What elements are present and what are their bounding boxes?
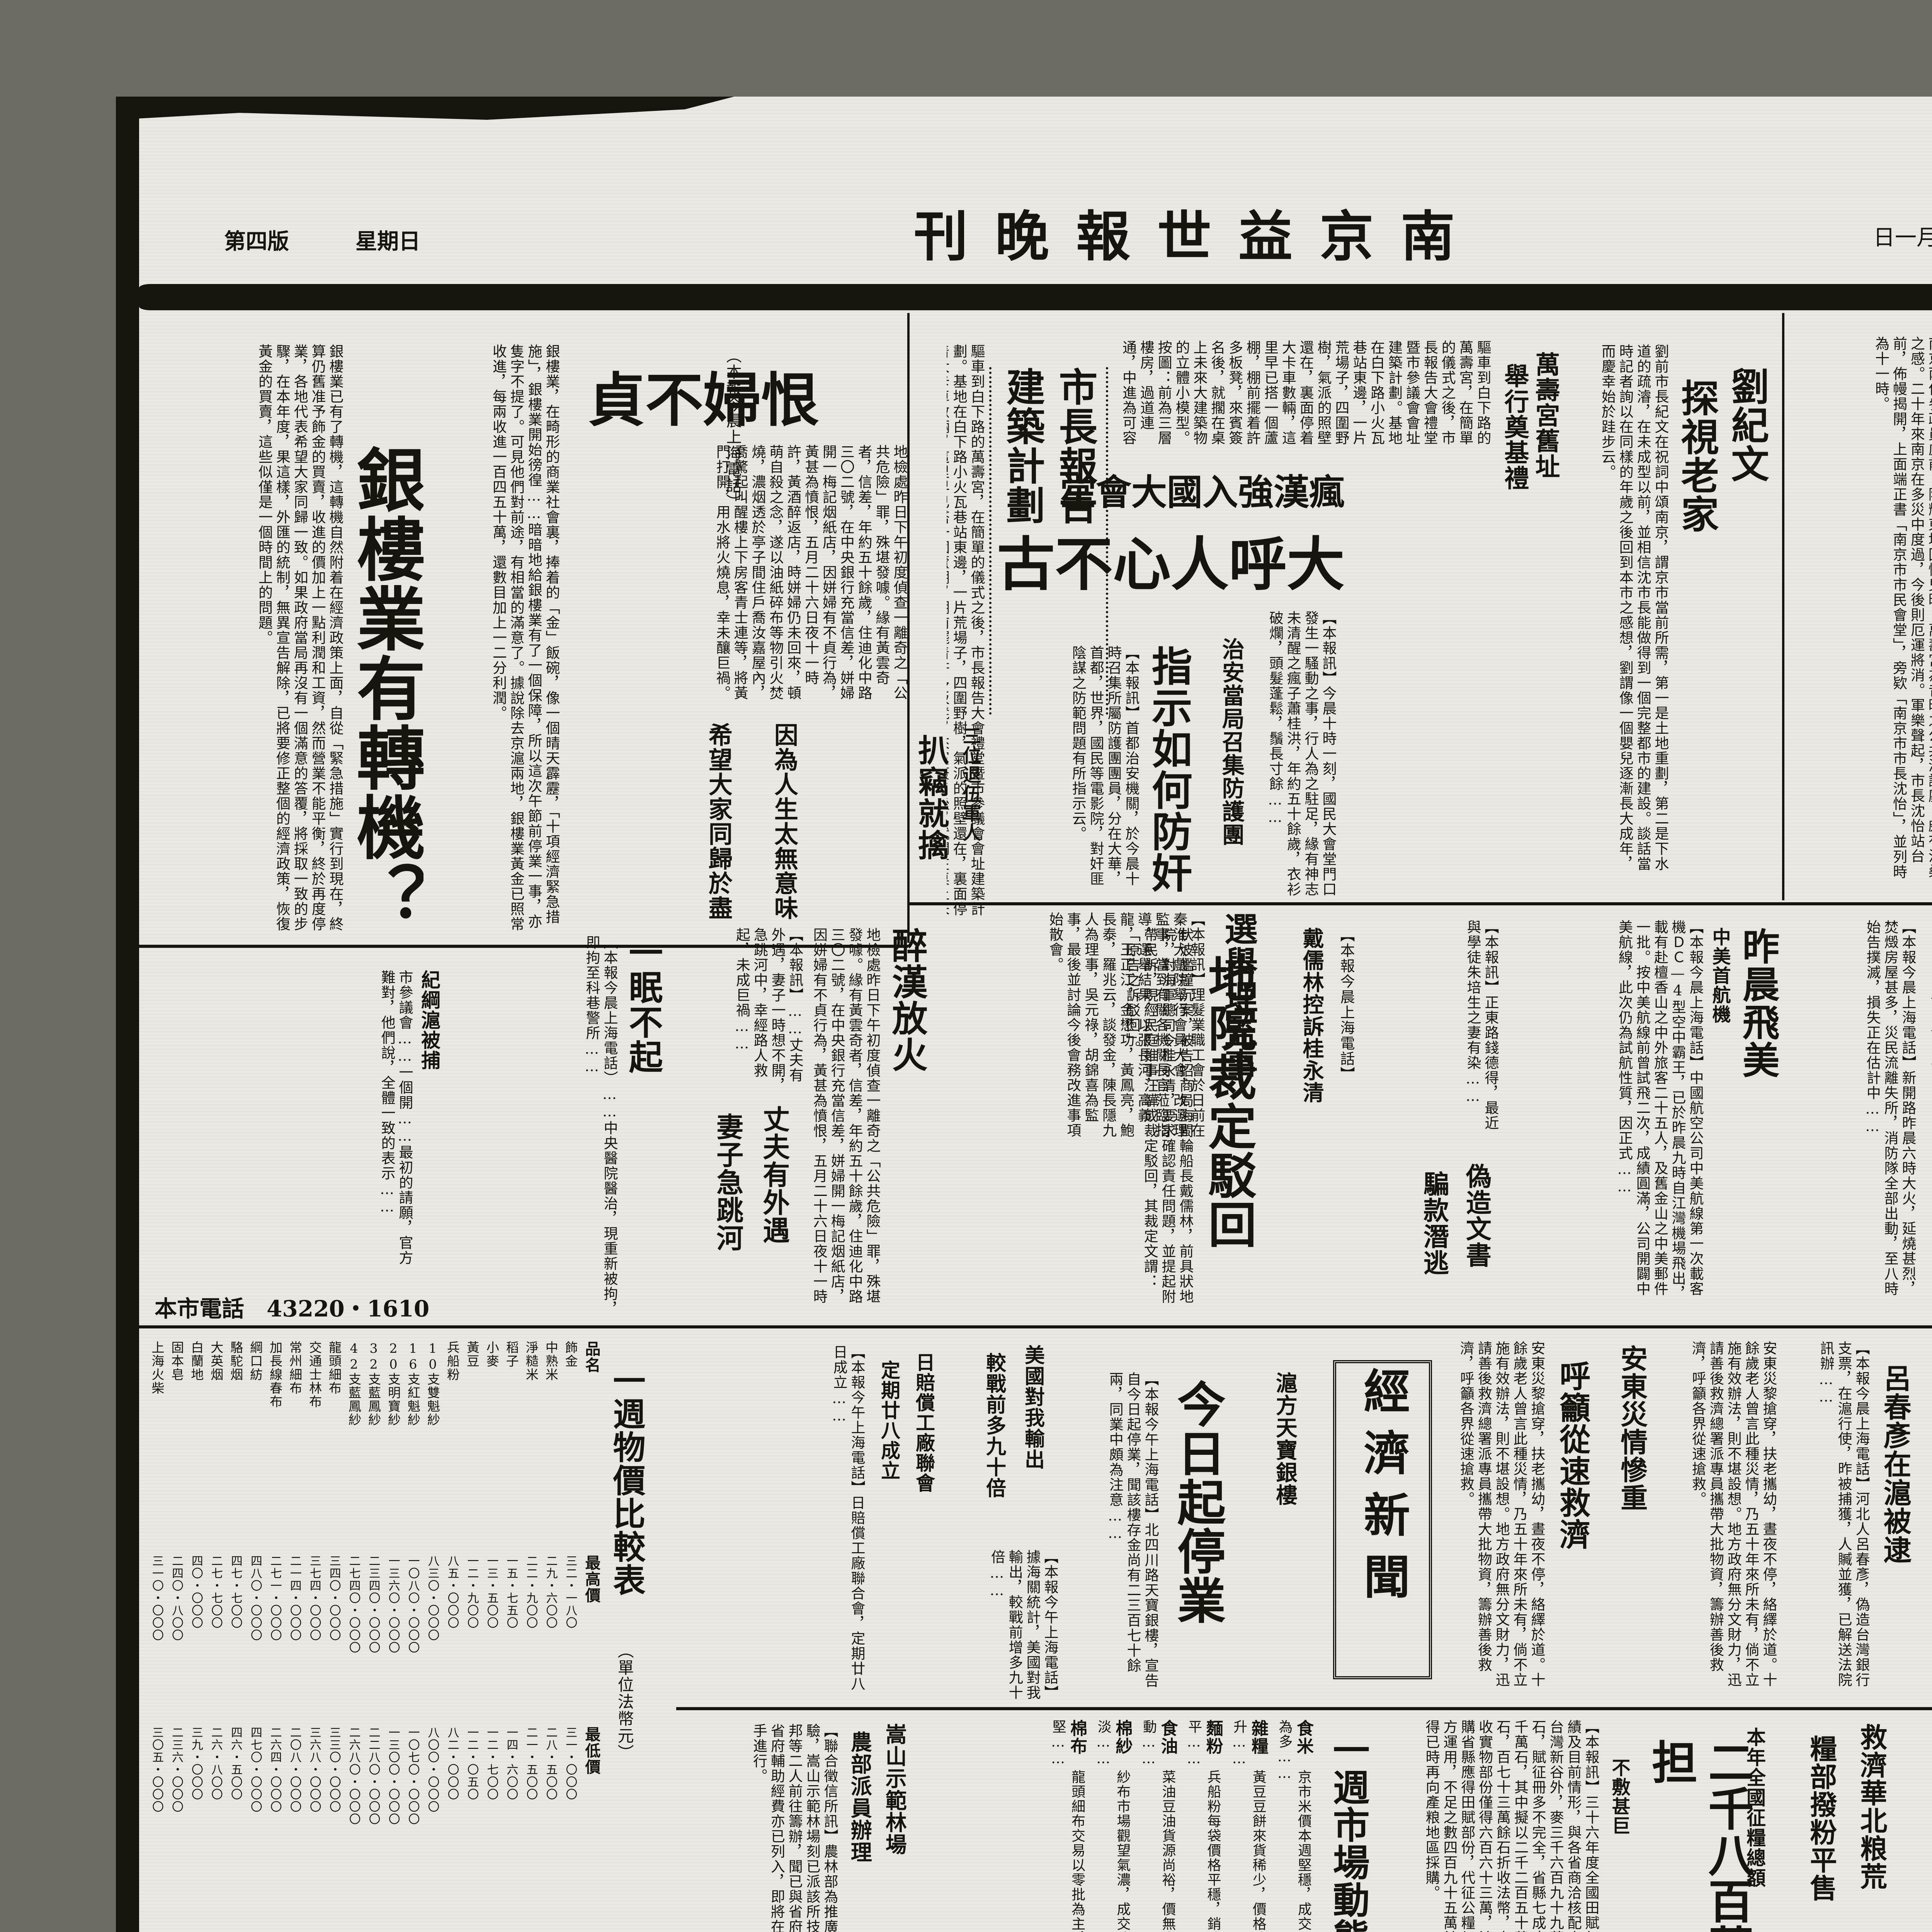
price-low-value: 三九・〇〇〇 [189, 1726, 203, 1893]
article-wanshou-title2: 舉行奠基禮 [1499, 363, 1530, 541]
market-section: 棉紗 紗布市場觀望氣濃，成交清淡…… [1094, 1719, 1133, 1932]
rule-h1b [908, 902, 1932, 905]
article-henfu-sub1: 因為人生太無意味 [769, 723, 799, 939]
price-high-value: 一五・七五〇 [504, 1555, 518, 1721]
article-ripei-title2: 定期廿八成立 [877, 1360, 901, 1522]
price-product-name: 固本皂 [168, 1341, 184, 1549]
price-column: 兵船粉八五・〇〇〇八二・〇〇〇 [442, 1341, 462, 1893]
article-henfu-body: 地檢處昨日下午初度偵查一離奇之「公共危險」罪，殊堪發噱。緣有黃雲奇者，信差，年約… [568, 444, 908, 707]
price-high-value: 二四〇・八〇〇 [169, 1555, 184, 1721]
price-low-value: 二一・五〇〇 [524, 1726, 538, 1893]
price-product-name: 小麥 [483, 1341, 499, 1549]
masthead-rule [139, 284, 1932, 310]
price-column: 中熟米二九・六〇〇二八・五〇〇 [541, 1341, 560, 1893]
price-column: 黃豆一二・九〇〇一二・〇五〇 [462, 1341, 481, 1893]
article-jiuji-title: 救濟華北粮荒 [1855, 1723, 1888, 1924]
price-high-value: 二七一・〇〇〇 [268, 1555, 282, 1721]
article-tianbao-body: 【本報今午上海電話】北四川路天寶銀樓，宣告自今日起停業，聞該樓存金尚有二三百七十… [1066, 1372, 1159, 1700]
price-high-value: 八五・〇〇〇 [445, 1555, 459, 1721]
article-dai-title2: 地院裁定駁回 [1198, 954, 1258, 1321]
article-yimian-body: （本報今晨上海電話）……中央醫院醫治，現重新被拘，即拘至科巷警所…… [564, 935, 618, 1318]
article-pian-title2: 騙款潛逃 [1418, 1171, 1450, 1325]
price-high-value: 二三四〇・〇〇〇 [366, 1555, 380, 1721]
price-low-value: 三〇五・〇〇〇 [150, 1726, 164, 1893]
article-zhangfu-title: 丈夫有外遇 [757, 1105, 791, 1314]
price-column: 白蘭地四〇・〇〇〇三九・〇〇〇 [186, 1341, 206, 1893]
price-high-value: 二七・七〇〇 [209, 1555, 223, 1721]
market-section: 食油 菜油豆油貨源尚裕，價無大變動…… [1139, 1719, 1178, 1932]
article-zhangfu-title2: 妻子急跳河 [711, 1113, 745, 1321]
price-low-value: 三一・〇〇〇 [563, 1726, 577, 1893]
article-zhian-title: 治安當局召集防護團 [1217, 638, 1245, 900]
price-high-value: 二七四〇・〇〇〇 [346, 1555, 361, 1721]
market-section: 雜糧 黃豆豆餅來貨稀少，價格略見上升…… [1230, 1719, 1269, 1932]
article-xinkailu-title2: 昨晨大火 [1924, 935, 1932, 1167]
price-high-value: 三七四・〇〇〇 [307, 1555, 321, 1721]
price-product-name: 32支藍鳳紗 [366, 1341, 381, 1549]
article-zhian-title2: 指示如何防奸 [1144, 645, 1194, 908]
price-high-value: 四〇・〇〇〇 [189, 1555, 203, 1721]
price-product-name: 稻子 [503, 1341, 519, 1549]
price-low-value: 二二八〇・〇〇〇 [366, 1726, 380, 1893]
price-low-value: 一〇七〇・〇〇〇 [405, 1726, 420, 1893]
price-high-value: 八三〇・〇〇〇 [425, 1555, 439, 1721]
article-zuihan-body: 地檢處昨日下午初度偵查一離奇之「公共危險」罪，殊堪發噱。緣有黃雲奇者，信差，年約… [811, 927, 881, 1318]
price-product-name: 中熟米 [543, 1341, 558, 1549]
price-high-value: 一三六〇・〇〇〇 [386, 1555, 400, 1721]
price-product-name: 常州細布 [287, 1341, 303, 1549]
price-column: 32支藍鳳紗二三四〇・〇〇〇二二八〇・〇〇〇 [364, 1341, 383, 1893]
price-product-name: 16支紅魁紗 [405, 1341, 421, 1549]
price-product-name: 白蘭地 [188, 1341, 204, 1549]
price-product-name: 兵船粉 [444, 1341, 460, 1549]
price-low-value: 二六八〇・〇〇〇 [346, 1726, 361, 1893]
price-low-value: 一二・〇五〇 [464, 1726, 479, 1893]
article-andong-body: 安東災黎搶穿，扶老攜幼，晝夜不停，絡繹於道。十餘歲老人曾言此種災情，乃五十年來所… [1441, 1341, 1546, 1700]
article-zuihan-title: 醉漢放火 [885, 927, 929, 1144]
price-column: 龍頭細布三四〇・〇〇〇三三〇・〇〇〇 [324, 1341, 344, 1893]
price-high-value: 二九・六〇〇 [543, 1555, 558, 1721]
price-column: 常州細布二一四・〇〇〇二〇八・〇〇〇 [285, 1341, 304, 1893]
article-songshan-title: 嵩山示範林場 [881, 1723, 907, 1909]
price-column: 20支明寶紗一三六〇・〇〇〇一三〇〇・〇〇〇 [383, 1341, 403, 1893]
price-low-value: 一二・七〇〇 [484, 1726, 498, 1893]
article-taiyin-title2: 呂春彥在滬被逮 [1878, 1364, 1912, 1611]
price-col-header: 品名 [582, 1341, 601, 1549]
price-column: 稻子一五・七五〇一四・六〇〇 [501, 1341, 521, 1893]
article-yimian-title: 一眠不起 [622, 935, 664, 1121]
price-high-value: 二一四・〇〇〇 [287, 1555, 302, 1721]
section-market-title: 一週市場動態 [1325, 1731, 1371, 1932]
price-column: 小麥一三・五〇〇一二・七〇〇 [481, 1341, 501, 1893]
article-dai-intro: 【本報今晨上海電話】 [1337, 927, 1355, 1136]
article-andong-bodyR: 安東災黎搶穿，扶老攜幼，晝夜不停，絡繹於道。十餘歲老人曾言此種災情，乃五十年來所… [1658, 1341, 1777, 1700]
price-low-value: 八二・〇〇〇 [445, 1726, 459, 1893]
price-product-name: 綱口紡 [247, 1341, 263, 1549]
article-henfu-sub2: 希望大家同歸於盡 [703, 723, 733, 939]
market-section-label: 食米 [1294, 1719, 1313, 1755]
article-paqie-title2: 扒竊就擒 [912, 734, 950, 908]
torn-edge-left [116, 97, 139, 1932]
article-henfu-title: 恨婦不貞 [580, 354, 819, 437]
price-product-name: 黃豆 [464, 1341, 480, 1549]
price-low-value: 二三六・〇〇〇 [169, 1726, 184, 1893]
price-column: 42支藍鳳紗二七四〇・〇〇〇二六八〇・〇〇〇 [344, 1341, 364, 1893]
newspaper-page: 中華民國三十六年六月一日 南京益世報晚刊 第四版 星期日 【本報訊】今日為市府成… [116, 97, 1932, 1932]
price-low-value: 四六・五〇〇 [228, 1726, 243, 1893]
market-section: 麵粉 兵船粉每袋價格平穩，銷路平平…… [1185, 1719, 1223, 1932]
article-andong-title: 安東災情慘重 [1615, 1345, 1649, 1546]
article-songshan-body: 【聯合徵信所訊】農林部為推廣林業實驗，嵩山示範林場刻已派該所技正李興邦等二人前往… [688, 1723, 838, 1932]
price-product-name: 上海火柴 [149, 1341, 165, 1549]
article-ripei-body: 【本報今午上海電話】日賠償工廠聯合會，定期廿八日成立…… [680, 1345, 866, 1700]
article-fenghan-title: 瘋漢強入國大會堂 [1051, 464, 1345, 515]
market-section-label: 棉布 [1067, 1719, 1087, 1755]
price-table-unit: （單位法幣元） [614, 1642, 634, 1835]
price-low-value: 一四・六〇〇 [504, 1726, 518, 1893]
price-low-value: 四七〇・〇〇〇 [248, 1726, 262, 1893]
article-yinlou-title: 銀樓業有轉機？ [348, 444, 423, 947]
price-low-value: 二六四・〇〇〇 [268, 1726, 282, 1893]
price-column: 加長線春布二七一・〇〇〇二六四・〇〇〇 [265, 1341, 285, 1893]
divider-v1 [907, 313, 910, 943]
price-table-row-labels: 品名最高價最低價 [580, 1341, 603, 1893]
article-tianbao-title2: 今日起停業 [1167, 1379, 1227, 1696]
article-pian-body: 【本報訊】正東路錢德得，最近與學徒朱培生之妻有染…… [1414, 920, 1499, 1144]
price-column: 飾金三二・一八〇三一・〇〇〇 [560, 1341, 580, 1893]
market-section-label: 棉紗 [1112, 1719, 1132, 1755]
article-jiuji-title2: 糧部撥粉平售 [1804, 1735, 1838, 1932]
price-product-name: 大英烟 [208, 1341, 224, 1549]
article-ripei-title: 日賠償工廠聯會 [912, 1352, 936, 1546]
price-column: 10支雙魁紗八三〇・〇〇〇八〇〇・〇〇〇 [422, 1341, 442, 1893]
price-column: 大英烟二七・七〇〇二六・八〇〇 [206, 1341, 226, 1893]
price-product-name: 42支藍鳳紗 [346, 1341, 362, 1549]
price-product-name: 10支雙魁紗 [424, 1341, 440, 1549]
market-section: 食米 京市米價本週堅穩，成交以中熟米為多…… [1276, 1719, 1314, 1932]
article-xinkailu-body2: 【本報今晨上海電話】新開路昨晨六時大火，延燒甚烈，焚燬房屋甚多，災民流離失所，消… [1801, 920, 1917, 1310]
article-feimei-title2: 中美首航機 [1708, 927, 1731, 1082]
price-low-value: 二八・五〇〇 [543, 1726, 558, 1893]
phone-strip: 本市電話 43220・1610 [155, 1291, 556, 1323]
article-liu-body: 劉前市長紀文在祝詞中頌南京，謂京市當前所需，第一是土地重劃，第二是下水道的疏濬，… [1573, 344, 1669, 885]
price-high-value: 二二・九〇〇 [524, 1555, 538, 1721]
rule-h2 [139, 1325, 1932, 1328]
market-section-label: 麵粉 [1203, 1719, 1223, 1755]
price-product-name: 淨糙米 [523, 1341, 539, 1549]
article-zhian-body: 【本報訊】首都治安機關，於今晨十時召集所屬防護團團員，分在大華，首都，世界，國民… [989, 645, 1140, 900]
market-sections: 食米 京市米價本週堅穩，成交以中熟米為多……雜糧 黃豆豆餅來貨稀少，價格略見上升… [920, 1719, 1314, 1932]
price-product-name: 駱駝烟 [228, 1341, 243, 1549]
article-feimei-title: 昨晨飛美 [1735, 927, 1781, 1105]
article-jiuji-bodyR: 華北缺粮情形，次參政會中，紛紛呼籲，請求救濟。據粮食部負責方面談，為救濟華北粮荒… [1909, 1719, 1932, 1932]
article-yinlou-body-left: 銀樓業已有了轉機，這轉機自然附着在經濟政策上面，自從「緊急措施」實行到現在，終算… [147, 344, 344, 939]
article-zhengliang-title2: 二千八百萬担 [1642, 1739, 1755, 1932]
price-product-name: 加長線春布 [267, 1341, 283, 1549]
article-songshan-title2: 農部派員辦理 [846, 1731, 872, 1917]
price-low-value: 八〇〇・〇〇〇 [425, 1726, 439, 1893]
article-taiyin-body: 【本報今晨上海電話】河北人呂春彥，偽造台灣銀行支票，在滬行使，昨被捕獲，人贓並獲… [1785, 1341, 1870, 1700]
article-fenghan-title2: 大呼人心不古 [989, 518, 1345, 602]
price-column: 淨糙米二二・九〇〇二一・五〇〇 [521, 1341, 541, 1893]
price-column: 固本皂二四〇・八〇〇二三六・〇〇〇 [167, 1341, 186, 1893]
market-section-label: 食油 [1158, 1719, 1177, 1755]
price-low-value: 三六八・〇〇〇 [307, 1726, 321, 1893]
price-product-name: 龍頭細布 [326, 1341, 342, 1549]
article-andong-title2: 呼籲從速救濟 [1553, 1360, 1592, 1584]
price-high-value: 三一〇・〇〇〇 [150, 1555, 164, 1721]
article-meiguo-title2: 較戰前多九十倍 [981, 1352, 1006, 1538]
divider-v2 [1782, 313, 1784, 900]
article-meiguo-title: 美國對我輸出 [1020, 1345, 1045, 1515]
article-dai-title: 戴儒林控訴桂永清 [1298, 927, 1325, 1236]
price-low-value: 二〇八・〇〇〇 [287, 1726, 302, 1893]
price-product-name: 飾金 [562, 1341, 578, 1549]
section-economy-box: 經濟新聞 [1333, 1360, 1432, 1679]
article-wanshou-title: 萬壽宮舊址 [1530, 352, 1561, 529]
price-low-value: 二六・八〇〇 [209, 1726, 223, 1893]
article-tianbao-title: 滬方天寶銀樓 [1271, 1372, 1298, 1573]
torn-edge-top [116, 97, 734, 120]
price-column: 駱駝烟四七・七〇〇四六・五〇〇 [226, 1341, 245, 1893]
price-product-name: 交通士林布 [306, 1341, 322, 1549]
newspaper-scan: 中華民國三十六年六月一日 南京益世報晚刊 第四版 星期日 【本報訊】今日為市府成… [0, 0, 1932, 1932]
market-section-list: 食米 京市米價本週堅穩，成交以中熟米為多……雜糧 黃豆豆餅來貨稀少，價格略見上升… [920, 1719, 1314, 1932]
price-high-value: 三二・一八〇 [563, 1555, 577, 1721]
article-fenghan-body: 【本報訊】今晨十時一刻，國民大會堂門口發生一騷動之事，行人為之駐足，緣有神志未清… [1256, 611, 1337, 900]
article-dai-body: 伏波艦撞沉案，被告招商局海閩輪船長戴儒林，前具狀地院，對海軍總司令桂永清，要求確… [1109, 927, 1194, 1318]
article-wanshou-body: 驅車到白下路的萬壽宮，在簡單的儀式之後，市長報告大會禮堂暨市參議會會址建築計劃。… [1121, 340, 1492, 460]
price-high-value: 三四〇・〇〇〇 [327, 1555, 341, 1721]
article-jigang-title: 紀綱滬被捕 [417, 970, 441, 1132]
price-low-value: 一三〇〇・〇〇〇 [386, 1726, 400, 1893]
article-zhengliang-title3: 不敷甚巨 [1607, 1758, 1631, 1882]
article-zhangfu-body: 【本報訊】……丈夫有外遇，妻子一時想不開，急跳河中，幸經路人救起，未成巨禍…… [707, 927, 804, 1094]
article-liu-title2: 探視老家 [1673, 379, 1720, 580]
price-column: 綱口紡四八〇・〇〇〇四七〇・〇〇〇 [245, 1341, 265, 1893]
edition-label: 第四版 [224, 224, 289, 255]
price-high-value: 四八〇・〇〇〇 [248, 1555, 262, 1721]
article-liu-title: 劉紀文 [1723, 367, 1770, 529]
price-column: 16支紅魁紗一〇八〇・〇〇〇一〇七〇・〇〇〇 [403, 1341, 422, 1893]
weekday-label: 星期日 [355, 224, 420, 255]
price-high-value: 一三・五〇〇 [484, 1555, 498, 1721]
market-section-label: 雜糧 [1248, 1719, 1268, 1755]
masthead: 南京益世報晚刊 [696, 193, 1700, 271]
article-pian-title: 偽造文書 [1461, 1163, 1492, 1318]
price-row-low-label: 最低價 [582, 1726, 601, 1893]
price-low-value: 三三〇・〇〇〇 [327, 1726, 341, 1893]
price-product-name: 20支明寶紗 [385, 1341, 401, 1549]
article-feimei-body: 【本報今晨上海電話】中國航空公司中美航線第一次載客機ＤＣ—4型空中霸王，已於昨晨… [1604, 920, 1704, 1310]
date-line: 中華民國三十六年六月一日 [1770, 220, 1932, 252]
price-row-high-label: 最高價 [582, 1555, 601, 1721]
price-table-title: 一週物價比較表 [607, 1364, 647, 1627]
price-high-value: 一二・九〇〇 [464, 1555, 479, 1721]
price-table: 品名最高價最低價飾金三二・一八〇三一・〇〇〇中熟米二九・六〇〇二八・五〇〇淨糙米… [147, 1341, 603, 1913]
section-economy-title: 經濟新聞 [1354, 1367, 1412, 1668]
article-jigang-body: 市參議會……一個開……最初的請願，官方難對，他們說，全體一致的表示…… [151, 970, 413, 1279]
price-table-columns: 品名最高價最低價飾金三二・一八〇三一・〇〇〇中熟米二九・六〇〇二八・五〇〇淨糙米… [147, 1341, 603, 1893]
price-column: 交通士林布三七四・〇〇〇三六八・〇〇〇 [304, 1341, 324, 1893]
article-zhengliang-body: 【本報訊】三十六年度全國田賦征收成績及目前情形，與各省商洽核配中，除台灣新谷外，… [1406, 1719, 1600, 1932]
price-high-value: 一〇八〇・〇〇〇 [405, 1555, 420, 1721]
price-high-value: 四七・七〇〇 [228, 1555, 243, 1721]
price-column: 上海火柴三一〇・〇〇〇三〇五・〇〇〇 [147, 1341, 167, 1893]
article-meiguo-body: 【本報今午上海電話】據海關統計，美國對我輸出，較戰前增多九十倍…… [981, 1549, 1059, 1700]
article-paqie-title: 三位退伍軍人 [958, 726, 981, 900]
article-yinlou-body-right: 銀樓業，在畸形的商業社會裏，捧着的「金」飯碗，像一個晴天霹靂，「十項經濟緊急措施… [468, 344, 560, 939]
rule-h3 [676, 1707, 1932, 1710]
market-section: 棉布 龍頭細布交易以零批為主，價格微堅…… [1049, 1719, 1087, 1932]
article-shifu-body: 【本報訊】今日為市府成立廿週年紀念，市府於今晨擧行市民會堂奠基典禮。四十年有成就… [1785, 336, 1932, 889]
